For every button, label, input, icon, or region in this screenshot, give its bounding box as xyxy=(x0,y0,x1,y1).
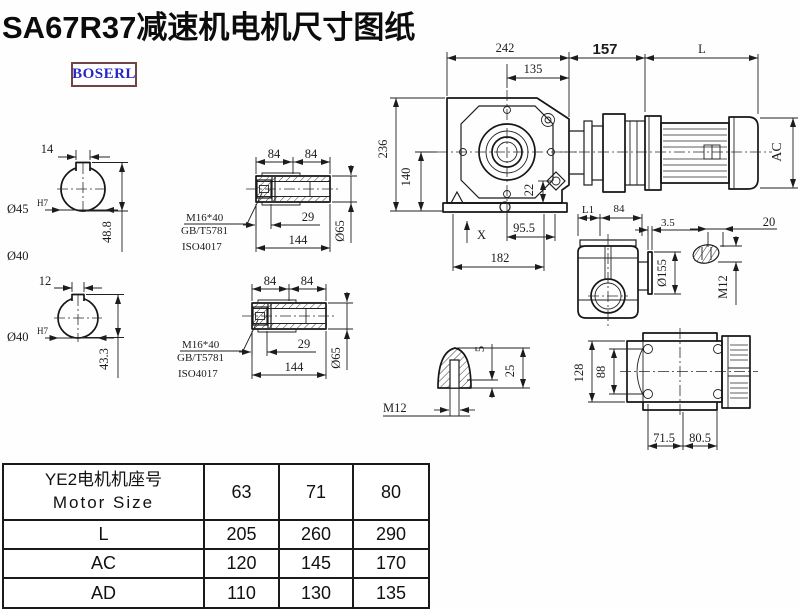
dim-plug-b: 25 xyxy=(503,365,517,378)
table-row-ad: AD 110 130 135 xyxy=(3,578,429,608)
dim-bore-b-tol: H7 xyxy=(37,326,48,336)
dim-width-inner: 135 xyxy=(524,62,543,76)
table-row-l: L 205 260 290 xyxy=(3,520,429,549)
label-stud-thread: M12 xyxy=(716,275,730,299)
motor-size-table: YE2电机机座号 Motor Size 63 71 80 L 205 260 2… xyxy=(2,463,430,609)
cell: 205 xyxy=(204,520,279,549)
dim-dia-a: Ø65 xyxy=(333,220,347,242)
label-std-iso-a: ISO4017 xyxy=(182,241,222,253)
motor-assembly-view: 157 L AC xyxy=(560,41,798,192)
cell: 145 xyxy=(279,549,353,578)
label-alt-bore: Ø40 xyxy=(7,249,29,263)
cell: 130 xyxy=(279,578,353,608)
label-bolt-b: M16*40 xyxy=(182,339,220,351)
table-header-cn: YE2电机机座号 xyxy=(4,469,203,492)
cell: 135 xyxy=(353,578,429,608)
dim-plug-offset: 22 xyxy=(522,184,536,197)
dim-foot-a: 95.5 xyxy=(513,221,535,235)
dim-key-height-a: 48.8 xyxy=(100,221,114,243)
dim-key-width-b: 12 xyxy=(39,274,52,288)
dim-84: 84 xyxy=(614,203,626,215)
label-std-gb-a: GB/T5781 xyxy=(181,225,228,237)
dim-len-left-b: 84 xyxy=(264,274,277,288)
table-header-cell: YE2电机机座号 Motor Size xyxy=(3,464,204,520)
drawing-sheet: SA67R37减速机电机尺寸图纸 BOSERL 14 Ø45 H7 xyxy=(0,0,800,609)
dim-len-right-a: 84 xyxy=(305,147,318,161)
label-std-gb-b: GB/T5781 xyxy=(177,352,224,364)
dim-foot-left: 71.5 xyxy=(653,431,675,445)
label-std-iso-b: ISO4017 xyxy=(178,368,218,380)
flange-side-view: L1 84 3.5 Ø155 xyxy=(578,203,700,326)
row-label: AC xyxy=(3,549,204,578)
shaft-section-b: 12 Ø40 H7 43.3 xyxy=(7,274,124,378)
dim-height-center: 140 xyxy=(399,168,413,187)
dim-width: 242 xyxy=(496,41,515,55)
dim-bottom-inner: 88 xyxy=(594,366,608,379)
table-size-71: 71 xyxy=(279,464,353,520)
dim-gear-length: 157 xyxy=(592,41,617,58)
dim-len-right-b: 84 xyxy=(301,274,314,288)
dim-height: 236 xyxy=(376,140,390,159)
plug-detail-x: 5 25 M12 xyxy=(383,344,530,416)
dim-foot-b: 182 xyxy=(491,251,510,265)
dim-stud-length: 20 xyxy=(763,215,776,229)
dim-depth-a: 29 xyxy=(302,210,315,224)
cell: 290 xyxy=(353,520,429,549)
dim-motor-dia: AC xyxy=(770,142,785,161)
cell: 170 xyxy=(353,549,429,578)
row-label: L xyxy=(3,520,204,549)
label-plug-thread: M12 xyxy=(383,401,407,415)
dim-len-left-a: 84 xyxy=(268,147,281,161)
row-label: AD xyxy=(3,578,204,608)
dim-flange-dia: Ø155 xyxy=(655,259,669,287)
table-row-ac: AC 120 145 170 xyxy=(3,549,429,578)
dim-bore-a-tol: H7 xyxy=(37,198,48,208)
dim-bore-b: Ø40 xyxy=(7,330,29,344)
detail-mark-x: X xyxy=(477,228,486,242)
cell: 260 xyxy=(279,520,353,549)
shaft-section-a: 14 Ø45 H7 48.8 Ø40 xyxy=(7,142,128,263)
table-size-63: 63 xyxy=(204,464,279,520)
dim-plug-a: 5 xyxy=(473,346,487,352)
dim-key-width-a: 14 xyxy=(41,142,54,156)
dim-bore-a: Ø45 xyxy=(7,202,29,216)
label-bolt-a: M16*40 xyxy=(186,212,224,224)
dim-depth-b: 29 xyxy=(298,337,311,351)
dim-motor-length: L xyxy=(698,42,706,56)
stud-detail: 20 M12 xyxy=(690,215,777,305)
cell: 110 xyxy=(204,578,279,608)
gearbox-front-view: 242 135 236 140 22 95.5 182 X xyxy=(376,41,577,271)
dim-flange-thk: 3.5 xyxy=(661,217,675,229)
dim-key-height-b: 43.3 xyxy=(97,348,111,370)
dim-l1: L1 xyxy=(582,204,594,216)
table-header-en: Motor Size xyxy=(4,492,203,515)
dim-bottom-height: 128 xyxy=(572,364,586,383)
table-size-80: 80 xyxy=(353,464,429,520)
dim-length-b: 144 xyxy=(285,360,305,374)
bottom-view: 128 88 71.5 80.5 xyxy=(572,328,758,450)
dim-length-a: 144 xyxy=(289,233,309,247)
cell: 120 xyxy=(204,549,279,578)
dim-foot-right: 80.5 xyxy=(689,431,711,445)
dim-dia-b: Ø65 xyxy=(329,347,343,369)
